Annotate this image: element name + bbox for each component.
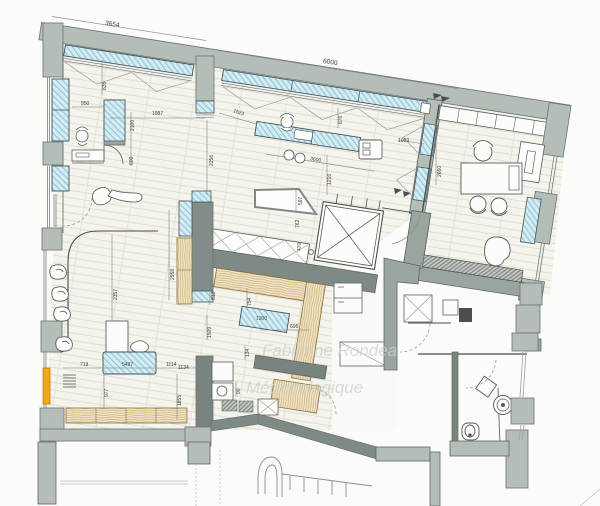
svg-text:950: 950 xyxy=(81,101,90,107)
svg-text:597: 597 xyxy=(298,196,304,205)
svg-text:1069: 1069 xyxy=(398,138,409,144)
svg-text:2256: 2256 xyxy=(209,155,215,166)
svg-text:5497: 5497 xyxy=(122,362,133,368)
svg-text:977: 977 xyxy=(104,388,110,397)
svg-text:470: 470 xyxy=(297,242,303,251)
svg-text:1855: 1855 xyxy=(177,395,183,406)
svg-text:1216: 1216 xyxy=(327,174,333,185)
svg-text:1987: 1987 xyxy=(152,111,163,117)
svg-text:2958: 2958 xyxy=(170,269,176,280)
svg-text:1509: 1509 xyxy=(207,327,213,338)
svg-text:754: 754 xyxy=(247,297,253,306)
svg-text:762: 762 xyxy=(295,219,301,228)
svg-text:600: 600 xyxy=(129,156,135,165)
svg-text:2357: 2357 xyxy=(113,289,119,300)
svg-text:876: 876 xyxy=(338,115,344,124)
svg-text:719: 719 xyxy=(80,362,89,368)
svg-text:1300: 1300 xyxy=(256,316,267,322)
svg-text:812: 812 xyxy=(211,291,217,300)
svg-text:Fabienne Rondea: Fabienne Rondea xyxy=(262,341,397,360)
svg-text:2100: 2100 xyxy=(130,120,136,131)
svg-text:134: 134 xyxy=(245,348,251,357)
svg-text:2660: 2660 xyxy=(437,166,443,177)
svg-text:1114: 1114 xyxy=(166,362,177,368)
svg-text:1134: 1134 xyxy=(178,365,189,371)
svg-text:635: 635 xyxy=(102,81,108,90)
svg-text:696: 696 xyxy=(290,324,299,330)
svg-text:90: 90 xyxy=(236,388,242,394)
svg-text:Métropologique: Métropologique xyxy=(246,378,363,397)
